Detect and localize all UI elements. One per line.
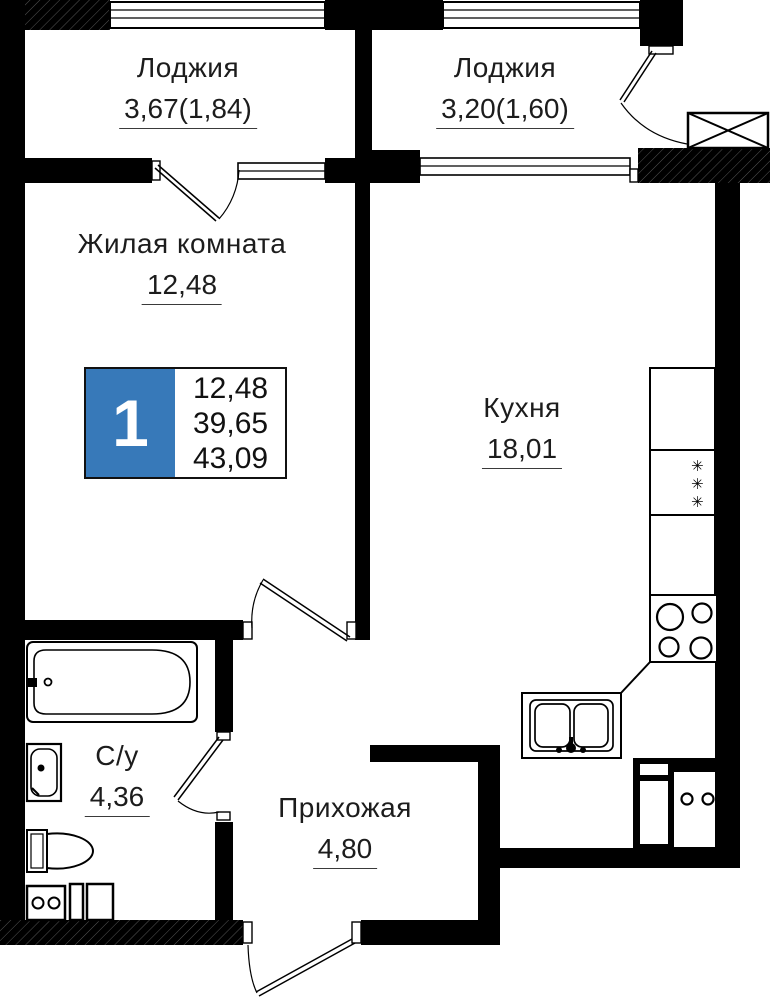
rooms-count-badge: 1 (86, 369, 175, 477)
badge-areas: 12,48 39,65 43,09 (175, 369, 285, 477)
room-label-bathroom: С/у 4,36 (85, 740, 150, 817)
room-area: 4,36 (85, 781, 150, 817)
room-label-loggia-left: Лоджия 3,67(1,84) (119, 52, 257, 129)
vent-shaft-icon (688, 113, 768, 148)
room-area: 3,20(1,60) (436, 93, 574, 129)
wall-loggia-right-a (372, 150, 420, 183)
balcony-door-left (152, 161, 239, 221)
wall-living-kitchen (355, 183, 370, 640)
room-area: 3,67(1,84) (119, 93, 257, 129)
washing-machine-icon (27, 884, 113, 920)
room-name: С/у (85, 740, 150, 772)
window-living-loggia (238, 163, 325, 179)
wall-left (0, 0, 25, 945)
bathroom-sink-icon (27, 744, 61, 801)
wall-hallway-top (370, 745, 490, 762)
bathroom-door (174, 732, 230, 820)
floor-plan: Лоджия 3,67(1,84) Лоджия 3,20(1,60) Жила… (0, 0, 770, 1000)
wall-right (715, 183, 740, 868)
fridge-snowflakes-icon: ✳ ✳ ✳ (691, 458, 704, 512)
room-area: 18,01 (482, 433, 562, 469)
wall-top-right-stub (640, 0, 683, 46)
room-name: Прихожая (278, 792, 412, 824)
bathtub-icon (27, 642, 197, 722)
badge-living-area: 12,48 (193, 371, 285, 406)
room-name: Жилая комната (78, 228, 287, 260)
apartment-info-badge: 1 12,48 39,65 43,09 (84, 367, 287, 479)
utility-block (633, 758, 718, 848)
badge-total-area: 43,09 (193, 441, 285, 476)
wall-top-a (25, 0, 110, 30)
window-loggia-left-top (110, 2, 325, 28)
wall-hallway-right (478, 745, 500, 945)
wall-bottom-left (0, 920, 243, 945)
wall-loggia-right-b (638, 148, 770, 183)
wall-kitchen-bottom (490, 848, 740, 868)
wall-bottom-right (361, 920, 500, 945)
room-name: Кухня (482, 392, 562, 424)
window-loggia-right-top (443, 2, 640, 28)
wall-top-b (325, 0, 443, 30)
room-area: 4,80 (278, 833, 412, 869)
fridge-icon (650, 450, 715, 515)
living-room-door (243, 579, 356, 641)
kitchen-sink-icon (522, 693, 621, 758)
wall-loggia-left-b (325, 158, 372, 183)
wall-loggia-left-a (25, 158, 152, 183)
entrance-door (243, 922, 361, 996)
window-kitchen-loggia (420, 158, 630, 175)
room-name: Лоджия (119, 52, 257, 84)
badge-area-without-loggia: 39,65 (193, 406, 285, 441)
room-label-kitchen: Кухня 18,01 (482, 392, 562, 469)
room-label-living-room: Жилая комната 12,48 (78, 228, 287, 305)
wall-living-bottom (0, 620, 243, 640)
room-label-hallway: Прихожая 4,80 (278, 792, 412, 869)
toilet-icon (27, 830, 93, 872)
room-name: Лоджия (436, 52, 574, 84)
stove-icon (650, 595, 717, 662)
wall-bathroom-right-top (215, 640, 233, 732)
room-area: 12,48 (78, 269, 287, 305)
room-label-loggia-right: Лоджия 3,20(1,60) (436, 52, 574, 129)
